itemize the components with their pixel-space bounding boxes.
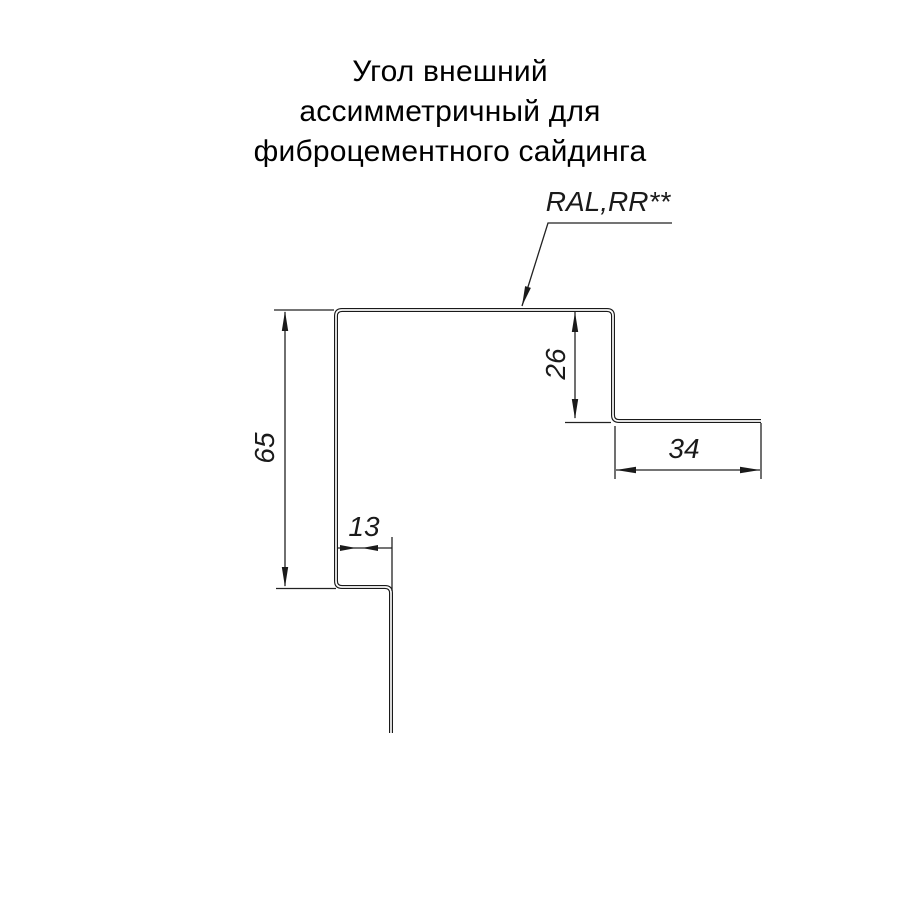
drawing-canvas: Угол внешний ассимметричный для фиброцем… <box>0 0 900 900</box>
arrow-26-down <box>572 399 578 419</box>
dimension-26: 26 <box>540 312 611 423</box>
dim-text-13: 13 <box>348 511 380 542</box>
profile-drawing-svg: 65 26 34 13 <box>0 0 900 900</box>
arrow-65-up <box>282 311 288 331</box>
dim-text-34: 34 <box>668 433 699 464</box>
coating-leader: RAL,RR** <box>522 186 672 306</box>
arrow-34-left <box>616 467 636 473</box>
arrow-34-right <box>740 467 760 473</box>
leader-line <box>522 223 672 306</box>
arrow-13-right <box>362 545 378 551</box>
dim-text-65: 65 <box>249 432 280 464</box>
arrow-65-down <box>282 567 288 587</box>
arrow-13-left <box>340 545 356 551</box>
arrow-26-up <box>572 312 578 332</box>
dimension-34: 34 <box>615 423 761 479</box>
coating-label: RAL,RR** <box>546 186 672 217</box>
leader-arrow <box>522 286 531 306</box>
dimension-65: 65 <box>249 310 336 589</box>
dim-text-26: 26 <box>540 348 571 381</box>
dimension-13: 13 <box>338 511 392 591</box>
